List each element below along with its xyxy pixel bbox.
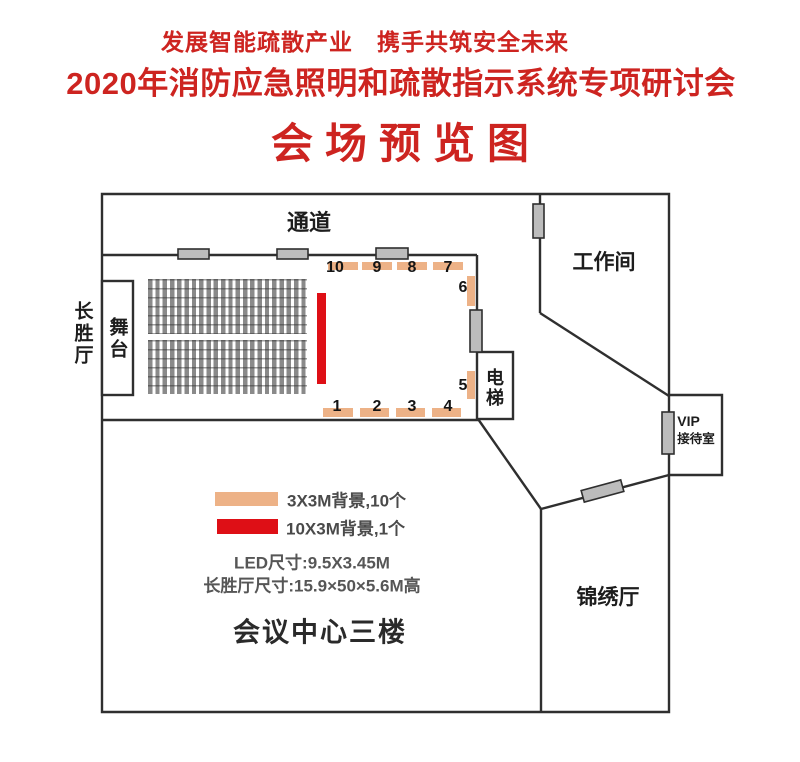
- marker-number-6: 6: [459, 279, 468, 297]
- legend-red-label: 10X3M背景,1个: [286, 515, 405, 540]
- venue-preview-poster: 发展智能疏散产业 携手共筑安全未来 2020年消防应急照明和疏散指示系统专项研讨…: [0, 0, 800, 762]
- floor-title: 会议中心三楼: [233, 611, 407, 650]
- door-top-2: [277, 249, 308, 259]
- marker-number-1: 1: [333, 398, 342, 416]
- backdrop-bar-5: [467, 371, 475, 399]
- marker-number-4: 4: [444, 398, 453, 416]
- hall-size-note: 长胜厅尺寸:15.9×50×5.6M高: [203, 572, 420, 597]
- workroom-label: 工作间: [573, 246, 636, 276]
- led-size-note: LED尺寸:9.5X3.45M: [234, 549, 390, 574]
- hall-name-label: 长胜厅: [69, 301, 96, 367]
- legend-red-swatch: [217, 519, 278, 534]
- marker-number-9: 9: [373, 259, 382, 277]
- door-workroom: [533, 204, 544, 238]
- marker-number-3: 3: [408, 398, 417, 416]
- marker-number-8: 8: [408, 259, 417, 277]
- door-top-3: [376, 248, 408, 259]
- door-hall-right: [470, 310, 482, 352]
- workroom-diagonal-wall: [540, 313, 669, 396]
- stage-label: 舞台: [104, 317, 131, 361]
- elevator-label: 电梯: [481, 368, 507, 408]
- marker-number-2: 2: [373, 398, 382, 416]
- vip-room-label: VIP 接待室: [677, 412, 715, 448]
- seat-block-bottom: [148, 340, 307, 394]
- vip-label-line1: VIP: [677, 412, 715, 430]
- jinxiu-hall-label: 锦绣厅: [577, 581, 640, 611]
- marker-number-7: 7: [444, 259, 453, 277]
- vip-label-line2: 接待室: [677, 430, 715, 448]
- legend-orange-swatch: [215, 492, 278, 506]
- marker-number-10: 10: [326, 259, 344, 277]
- legend-orange-label: 3X3M背景,10个: [287, 487, 406, 512]
- corridor-label: 通道: [287, 205, 331, 237]
- backdrop-bar-6: [467, 276, 475, 306]
- backdrop-10x3m-bar: [317, 293, 326, 384]
- door-jinxiu: [581, 480, 624, 502]
- door-vip: [662, 412, 674, 454]
- marker-number-5: 5: [459, 377, 468, 395]
- elevator-diagonal-wall: [478, 419, 541, 509]
- door-top-1: [178, 249, 209, 259]
- seat-block-top: [148, 279, 307, 334]
